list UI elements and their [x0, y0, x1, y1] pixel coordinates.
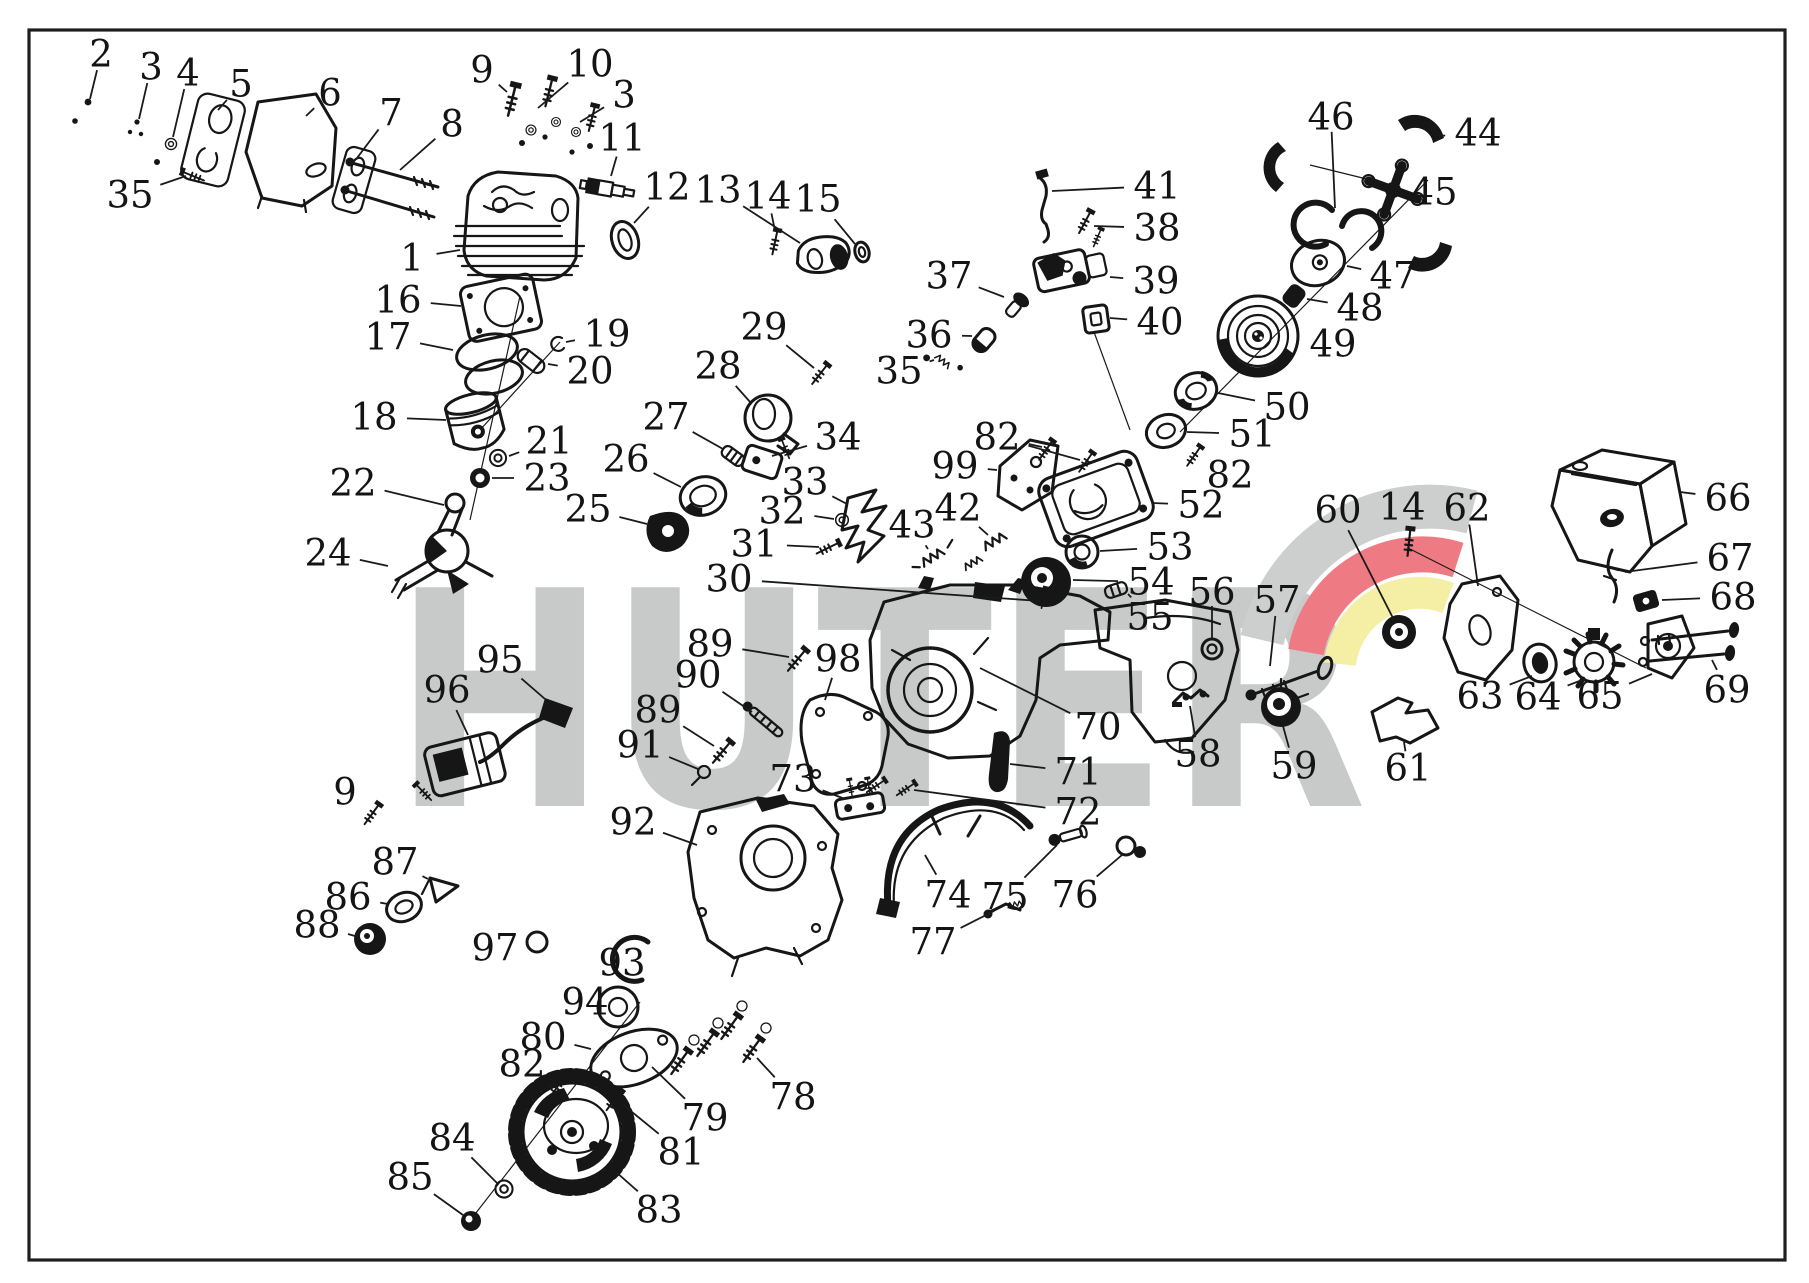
part-label-1: 1 — [400, 237, 424, 280]
part-label-7: 7 — [379, 92, 403, 135]
part-label-20: 20 — [566, 350, 613, 393]
part-label-8: 8 — [440, 103, 464, 146]
part-label-28: 28 — [694, 345, 741, 388]
part-label-95: 95 — [476, 639, 523, 682]
part-label-66: 66 — [1704, 477, 1751, 520]
part-label-12: 12 — [643, 166, 690, 209]
part-label-93: 93 — [598, 942, 645, 985]
part-label-9: 9 — [333, 771, 357, 814]
diagram-stage: HUTER — [0, 0, 1809, 1283]
part-label-41: 41 — [1133, 165, 1180, 208]
part-label-82: 82 — [973, 416, 1020, 459]
part-label-94: 94 — [561, 981, 608, 1024]
part-label-43: 43 — [888, 504, 935, 547]
part-label-60: 60 — [1314, 489, 1361, 532]
part-label-2: 2 — [89, 33, 113, 76]
part-label-61: 61 — [1384, 747, 1431, 790]
part-label-85: 85 — [386, 1156, 433, 1199]
part-label-81: 81 — [657, 1131, 704, 1174]
part-label-71: 71 — [1054, 751, 1101, 794]
part-85-nut — [461, 1211, 481, 1231]
part-label-30: 30 — [705, 558, 752, 601]
part-label-68: 68 — [1709, 576, 1756, 619]
part-label-83: 83 — [635, 1189, 682, 1232]
part-label-45: 45 — [1410, 171, 1457, 214]
part-label-39: 39 — [1132, 260, 1179, 303]
part-label-56: 56 — [1188, 571, 1235, 614]
leader-line-99 — [988, 469, 997, 470]
part-label-14: 14 — [1378, 486, 1425, 529]
part-label-5: 5 — [229, 63, 253, 106]
part-label-52: 52 — [1177, 484, 1224, 527]
part-label-46: 46 — [1307, 96, 1354, 139]
part-60-oil-seal — [1382, 615, 1416, 649]
part-label-37: 37 — [925, 255, 972, 298]
part-label-29: 29 — [740, 306, 787, 349]
part-label-10: 10 — [566, 43, 613, 86]
part-label-40: 40 — [1136, 301, 1183, 344]
exploded-parts-diagram: HUTER — [0, 0, 1809, 1283]
part-label-77: 77 — [909, 921, 956, 964]
part-label-72: 72 — [1054, 791, 1101, 834]
part-label-27: 27 — [642, 396, 689, 439]
part-label-18: 18 — [350, 396, 397, 439]
part-label-51: 51 — [1228, 413, 1275, 456]
part-label-35: 35 — [875, 350, 922, 393]
part-label-9: 9 — [470, 49, 494, 92]
part-label-6: 6 — [318, 72, 342, 115]
part-label-69: 69 — [1703, 669, 1750, 712]
part-label-59: 59 — [1270, 745, 1317, 788]
part-label-42: 42 — [934, 487, 981, 530]
part-label-67: 67 — [1706, 537, 1753, 580]
part-label-14: 14 — [744, 175, 791, 218]
part-label-88: 88 — [293, 904, 340, 947]
part-label-99: 99 — [931, 445, 978, 488]
part-label-84: 84 — [428, 1117, 475, 1160]
part-label-91: 91 — [616, 724, 663, 767]
part-label-70: 70 — [1074, 706, 1121, 749]
part-label-82: 82 — [498, 1043, 545, 1086]
part-23-needle-bearing — [470, 468, 490, 488]
leader-line-51 — [1187, 432, 1219, 433]
part-label-55: 55 — [1126, 596, 1173, 639]
part-label-73: 73 — [769, 758, 816, 801]
part-label-63: 63 — [1456, 675, 1503, 718]
part-label-96: 96 — [423, 669, 470, 712]
part-label-22: 22 — [329, 462, 376, 505]
part-label-58: 58 — [1174, 733, 1221, 776]
part-label-13: 13 — [694, 169, 741, 212]
part-label-97: 97 — [471, 927, 518, 970]
part-label-75: 75 — [981, 876, 1028, 919]
part-label-25: 25 — [564, 488, 611, 531]
part-label-17: 17 — [364, 316, 411, 359]
part-label-65: 65 — [1576, 675, 1623, 718]
part-label-3: 3 — [139, 46, 163, 89]
part-label-76: 76 — [1051, 874, 1098, 917]
part-label-62: 62 — [1443, 487, 1490, 530]
leader-line-38 — [1094, 226, 1124, 227]
part-label-87: 87 — [371, 841, 418, 884]
leader-line-52 — [1152, 503, 1168, 504]
part-label-74: 74 — [924, 874, 971, 917]
part-label-35: 35 — [106, 174, 153, 217]
part-label-78: 78 — [769, 1076, 816, 1119]
part-label-92: 92 — [609, 801, 656, 844]
part-label-24: 24 — [304, 532, 351, 575]
part-label-3: 3 — [612, 74, 636, 117]
part-label-49: 49 — [1309, 323, 1356, 366]
part-label-44: 44 — [1454, 112, 1501, 155]
part-88-nut — [354, 923, 386, 955]
part-label-15: 15 — [794, 178, 841, 221]
part-label-4: 4 — [176, 52, 200, 95]
part-label-98: 98 — [814, 638, 861, 681]
leader-line-54 — [1073, 580, 1118, 581]
part-label-11: 11 — [598, 117, 645, 160]
part-label-57: 57 — [1253, 579, 1300, 622]
part-label-64: 64 — [1514, 676, 1561, 719]
part-label-26: 26 — [602, 438, 649, 481]
leader-line-39 — [1110, 277, 1123, 278]
part-label-38: 38 — [1133, 207, 1180, 250]
leader-line-44 — [1438, 135, 1445, 136]
part-label-34: 34 — [814, 416, 861, 459]
